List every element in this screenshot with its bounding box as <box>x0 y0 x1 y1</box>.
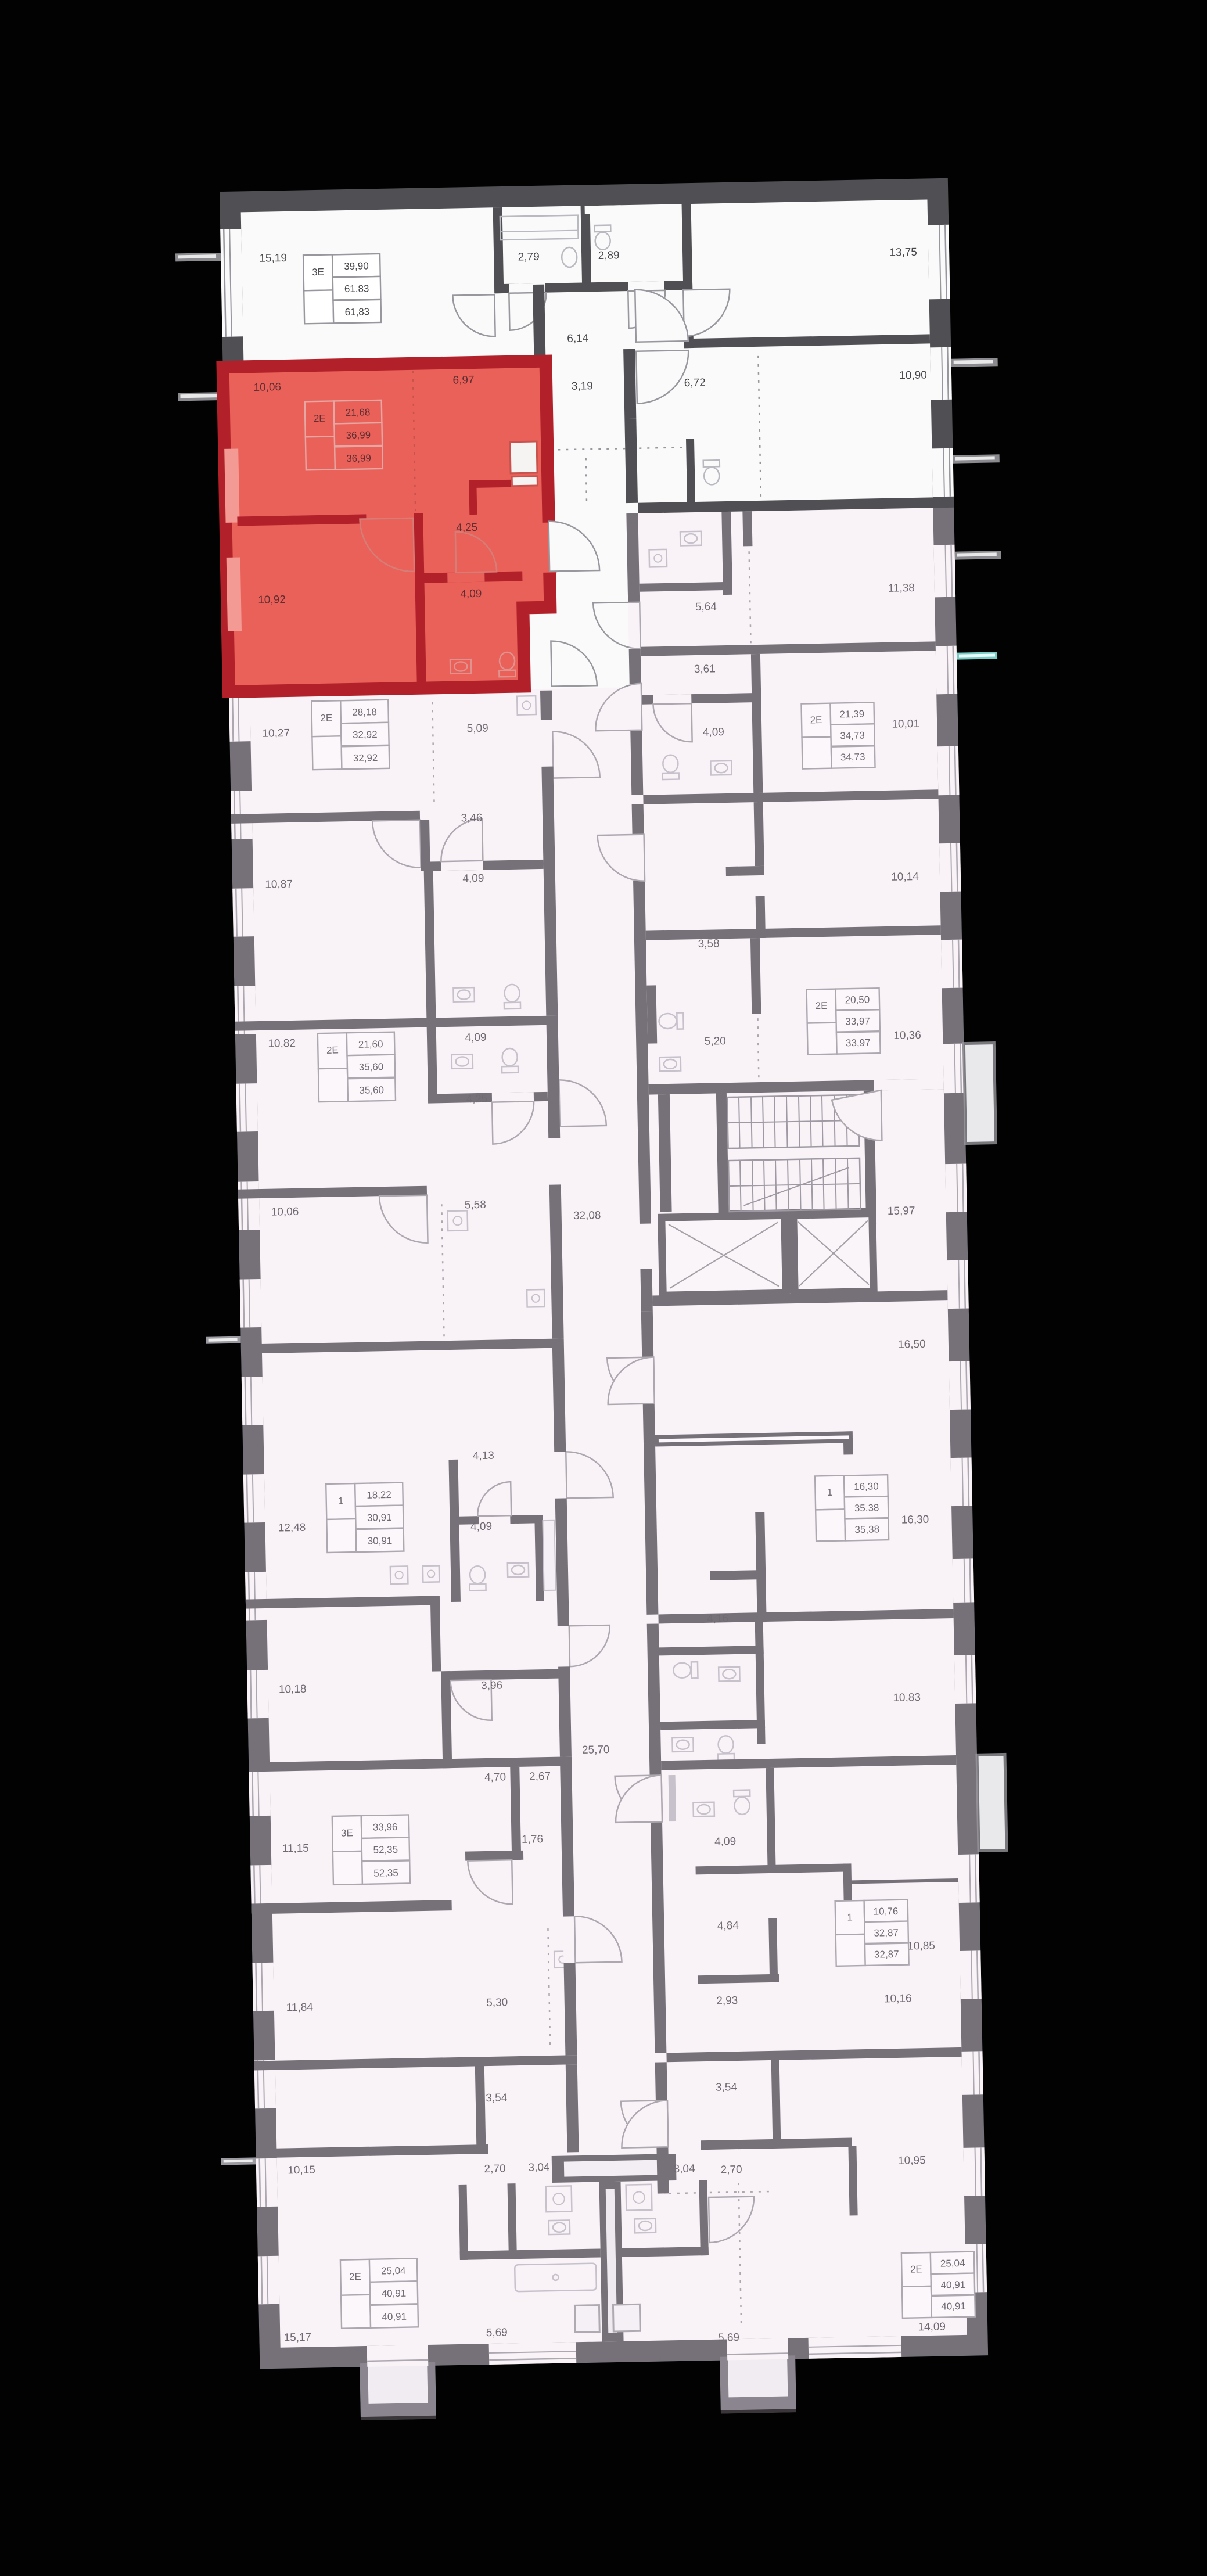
svg-text:2,89: 2,89 <box>598 249 619 262</box>
svg-text:36,99: 36,99 <box>346 452 371 464</box>
svg-text:2Е: 2Е <box>314 413 326 424</box>
svg-text:4,09: 4,09 <box>460 588 482 601</box>
svg-text:61,83: 61,83 <box>344 283 369 294</box>
svg-text:10,92: 10,92 <box>258 594 286 606</box>
svg-text:4,25: 4,25 <box>456 522 477 534</box>
svg-text:2,79: 2,79 <box>518 251 539 264</box>
svg-text:6,97: 6,97 <box>452 374 474 387</box>
svg-text:3Е: 3Е <box>312 267 324 278</box>
svg-text:10,06: 10,06 <box>253 381 281 394</box>
svg-text:10,90: 10,90 <box>899 369 927 382</box>
svg-text:61,83: 61,83 <box>344 306 369 318</box>
svg-text:3,19: 3,19 <box>572 380 593 393</box>
svg-text:15,19: 15,19 <box>259 252 287 265</box>
svg-text:6,14: 6,14 <box>567 332 589 345</box>
svg-text:36,99: 36,99 <box>346 429 371 441</box>
svg-text:39,90: 39,90 <box>344 260 369 272</box>
svg-text:13,75: 13,75 <box>889 246 917 259</box>
svg-text:6,72: 6,72 <box>684 377 706 390</box>
svg-text:21,68: 21,68 <box>346 407 371 418</box>
